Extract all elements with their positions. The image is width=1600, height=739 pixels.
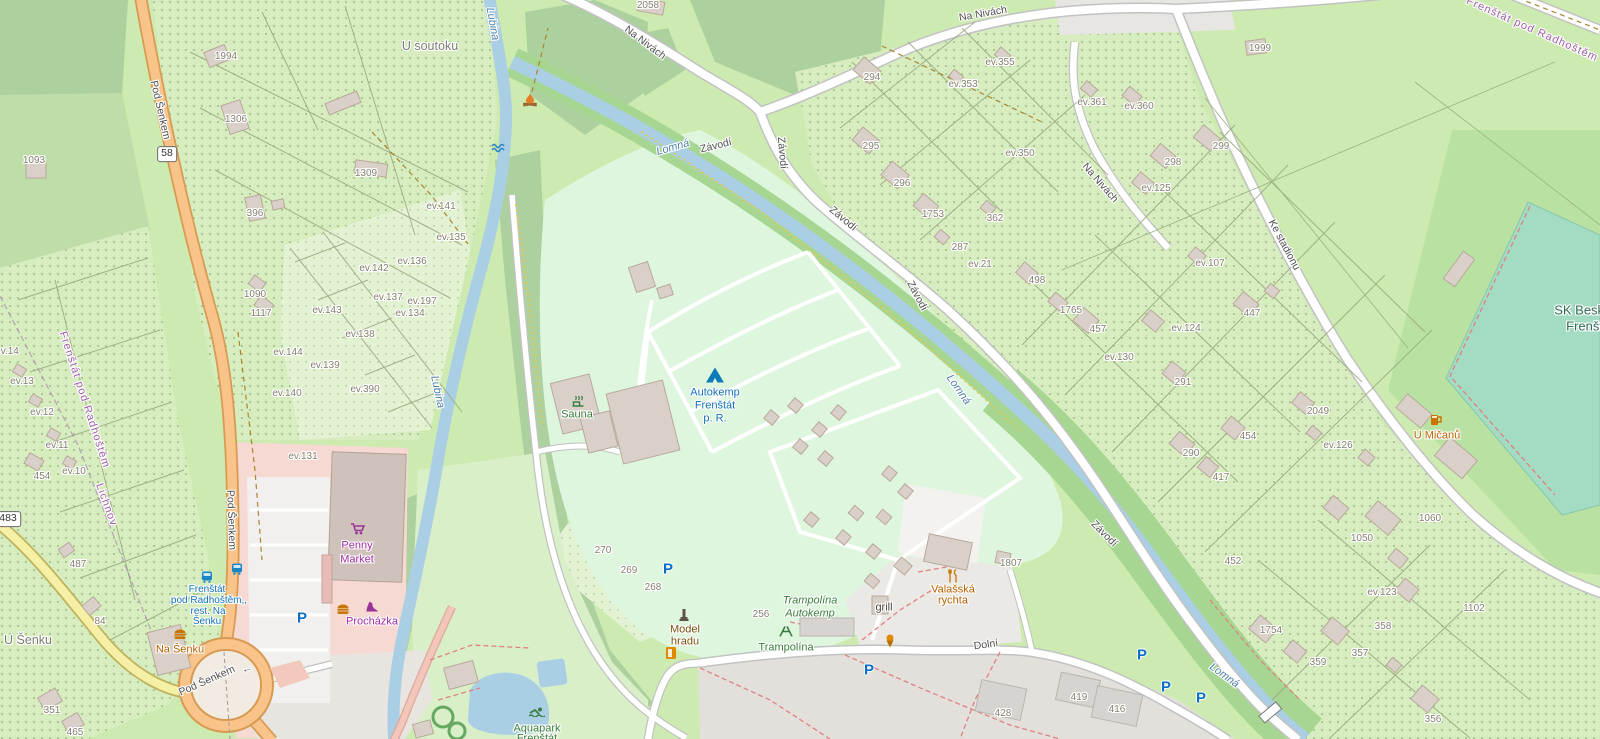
parcel-number: 287 bbox=[952, 243, 969, 253]
parcel-number: ev.124 bbox=[1171, 324, 1200, 334]
parcel-number: ev.125 bbox=[1141, 184, 1170, 194]
campsite-label: Frenštát bbox=[695, 401, 735, 412]
parcel-number: 1754 bbox=[1260, 626, 1282, 636]
parcel-number: ev.10 bbox=[62, 467, 86, 477]
road-label: Na Nivách bbox=[622, 24, 667, 62]
parcel-number: ev.355 bbox=[985, 58, 1014, 68]
sports-club-label: SK Beskyd bbox=[1554, 304, 1600, 317]
fastfood-icon bbox=[174, 629, 187, 639]
leisure-label: Trampolína bbox=[783, 596, 838, 607]
parcel-number: 269 bbox=[621, 566, 638, 576]
water-label: Lomná bbox=[944, 373, 972, 407]
boundary-label: Lichnov bbox=[93, 482, 119, 528]
parcel-number: 1994 bbox=[215, 52, 237, 62]
place-label: U soutoku bbox=[402, 40, 458, 53]
parcel-number: 270 bbox=[595, 546, 612, 556]
parcel-number: ev.360 bbox=[1124, 102, 1153, 112]
fastfood-icon bbox=[337, 604, 350, 614]
parking-icon: P bbox=[1161, 680, 1171, 695]
parcel-number: ev.11 bbox=[46, 441, 69, 451]
playground-icon bbox=[779, 626, 793, 637]
leisure-label: Trampolína bbox=[758, 643, 813, 654]
road-label: Závodí bbox=[699, 137, 733, 155]
monument-icon bbox=[680, 609, 689, 621]
road-label: Pod Šenkem bbox=[225, 490, 238, 550]
parcel-number: 1050 bbox=[1351, 534, 1373, 544]
water-label: Lubina bbox=[484, 7, 501, 41]
bus-stop-label: Frenštát bbox=[189, 585, 226, 595]
parcel-number: 1999 bbox=[1249, 44, 1271, 54]
parcel-number: 84 bbox=[94, 617, 105, 627]
parcel-number: 294 bbox=[864, 73, 881, 83]
parcel-number: 1765 bbox=[1060, 306, 1082, 316]
road-label: Na Nivách bbox=[1080, 161, 1120, 204]
road-label: Pod Šenkem bbox=[148, 80, 172, 141]
parcel-number: ev.134 bbox=[395, 309, 424, 319]
parcel-number: 419 bbox=[1071, 693, 1088, 703]
campfire-icon bbox=[523, 94, 537, 107]
parcel-number: 295 bbox=[863, 142, 880, 152]
parcel-number: 268 bbox=[645, 583, 662, 593]
parcel-number: ev.361 bbox=[1077, 98, 1106, 108]
campsite-label: Autokemp bbox=[690, 388, 740, 399]
parcel-number: ev.137 bbox=[373, 293, 402, 303]
parcel-number: 298 bbox=[1165, 158, 1182, 168]
parcel-number: 299 bbox=[1213, 142, 1230, 152]
parcel-number: 2049 bbox=[1307, 407, 1329, 417]
parcel-number: 362 bbox=[987, 214, 1004, 224]
leisure-label: Autokemp bbox=[785, 609, 835, 620]
parking-icon: P bbox=[1137, 648, 1147, 663]
parking-icon: P bbox=[297, 611, 307, 626]
parcel-number: 290 bbox=[1183, 449, 1200, 459]
vending-icon bbox=[666, 647, 676, 659]
poi-label: hradu bbox=[671, 637, 699, 648]
parcel-number: 1093 bbox=[23, 156, 45, 166]
parcel-number: 351 bbox=[44, 706, 61, 716]
sports-club-label: Frenštát bbox=[1566, 320, 1600, 333]
parcel-number: 417 bbox=[1213, 473, 1230, 483]
sauna-icon bbox=[572, 395, 585, 407]
road-label: Dolní bbox=[973, 638, 999, 652]
tent-icon bbox=[706, 368, 724, 383]
amenity-label: U Mičanů bbox=[1414, 431, 1460, 442]
road-label: Závodí bbox=[905, 279, 929, 312]
cart-icon bbox=[351, 523, 365, 535]
road-label: ← bbox=[241, 663, 254, 676]
parcel-number: 356 bbox=[1425, 715, 1442, 725]
parcel-number: ev.107 bbox=[1195, 259, 1224, 269]
parcel-number: ev.136 bbox=[397, 257, 426, 267]
map-canvas[interactable]: Pod ŠenkemPod ŠenkemPod Šenkem←Na Nivách… bbox=[0, 0, 1600, 739]
parcel-number: ev.350 bbox=[1005, 149, 1034, 159]
water-label: Lomná bbox=[655, 138, 690, 158]
poi-label: Model bbox=[670, 625, 700, 636]
parcel-number: 1753 bbox=[922, 210, 944, 220]
boundary-label: Frenštát pod Radhoštěm bbox=[1464, 0, 1599, 64]
parcel-number: 359 bbox=[1310, 658, 1327, 668]
parcel-number: ev.13 bbox=[10, 377, 34, 387]
parcel-number: ev.126 bbox=[1323, 441, 1352, 451]
parcel-number: 1117 bbox=[251, 309, 272, 319]
water-label: Lomná bbox=[1207, 662, 1241, 691]
parcel-number: ev.141 bbox=[426, 202, 455, 212]
parcel-number: ev.14 bbox=[0, 347, 19, 357]
parcel-number: ev.353 bbox=[948, 80, 977, 90]
parcel-number: 454 bbox=[1240, 432, 1257, 442]
parcel-number: ev.21 bbox=[968, 260, 992, 270]
parcel-number: 454 bbox=[34, 472, 51, 482]
road-shield: 483 bbox=[0, 511, 21, 527]
map-labels: Pod ŠenkemPod ŠenkemPod Šenkem←Na Nivách… bbox=[0, 0, 1600, 739]
parcel-number: 465 bbox=[67, 728, 84, 738]
parcel-number: ev.139 bbox=[310, 361, 339, 371]
parcel-number: ev.197 bbox=[407, 297, 436, 307]
parcel-number: 1306 bbox=[225, 115, 247, 125]
road-shield: 58 bbox=[157, 146, 177, 162]
parking-icon: P bbox=[663, 562, 673, 577]
place-label: U Šenku bbox=[4, 634, 52, 647]
parcel-number: 1309 bbox=[355, 169, 377, 179]
parking-icon: P bbox=[1196, 691, 1206, 706]
campsite-label: p. R. bbox=[703, 414, 726, 425]
parcel-number: 416 bbox=[1109, 705, 1126, 715]
amenity-label: rychta bbox=[938, 596, 968, 607]
parcel-number: ev.12 bbox=[30, 408, 54, 418]
water-label: Lubina bbox=[428, 375, 446, 410]
bus-stop-label: pod Radhoštěm,, bbox=[171, 596, 247, 606]
parcel-number: ev.138 bbox=[345, 330, 374, 340]
road-label: Závodí bbox=[1089, 519, 1119, 549]
shoe-icon bbox=[365, 602, 378, 613]
shop-label: Procházka bbox=[346, 617, 398, 628]
parcel-number: ev.135 bbox=[436, 233, 465, 243]
parcel-number: ev.142 bbox=[359, 264, 388, 274]
parcel-number: 296 bbox=[894, 179, 911, 189]
amenity-label: Na Šenku bbox=[156, 645, 204, 656]
bus-icon bbox=[202, 571, 213, 583]
parcel-number: 452 bbox=[1225, 557, 1242, 567]
parcel-number: 428 bbox=[995, 709, 1012, 719]
road-label: Závodí bbox=[775, 137, 788, 170]
parcel-number: 291 bbox=[1175, 378, 1192, 388]
parcel-number: 1090 bbox=[244, 290, 266, 300]
restaurant-icon bbox=[947, 570, 959, 583]
parcel-number: 1102 bbox=[1463, 604, 1485, 614]
leisure-label: Frenštát bbox=[517, 734, 557, 739]
road-label: Ke stadionu bbox=[1266, 218, 1301, 272]
waves-icon bbox=[491, 143, 505, 153]
parcel-number: 498 bbox=[1029, 276, 1046, 286]
parcel-number: ev.131 bbox=[288, 452, 317, 462]
parcel-number: 447 bbox=[1244, 309, 1261, 319]
parcel-number: 1807 bbox=[1000, 559, 1022, 569]
parcel-number: 256 bbox=[753, 610, 770, 620]
leisure-label: Sauna bbox=[561, 410, 593, 421]
parcel-number: 2058 bbox=[637, 1, 659, 11]
icecream-icon bbox=[885, 635, 895, 648]
poi-label: grill bbox=[875, 603, 892, 614]
parcel-number: ev.144 bbox=[273, 348, 302, 358]
parcel-number: 487 bbox=[70, 560, 87, 570]
parcel-number: ev.143 bbox=[312, 306, 341, 316]
parking-icon: P bbox=[864, 663, 874, 678]
parcel-number: 396 bbox=[247, 209, 264, 219]
bus-stop-label: Šenku bbox=[193, 617, 221, 627]
swimmer-icon bbox=[529, 707, 545, 717]
parcel-number: 358 bbox=[1375, 622, 1392, 632]
parcel-number: ev.140 bbox=[272, 389, 301, 399]
parcel-number: 357 bbox=[1352, 649, 1369, 659]
road-label: Na Nivách bbox=[958, 5, 1008, 24]
road-label: Pod Šenkem bbox=[177, 664, 236, 698]
parcel-number: 1060 bbox=[1419, 514, 1441, 524]
road-label: Závodí bbox=[827, 205, 858, 234]
shop-label: Market bbox=[340, 555, 374, 566]
parcel-number: ev.123 bbox=[1367, 588, 1396, 598]
bus-icon bbox=[232, 563, 243, 575]
parcel-number: ev.390 bbox=[350, 385, 379, 395]
beer-icon bbox=[1430, 414, 1442, 426]
parcel-number: ev.130 bbox=[1104, 353, 1133, 363]
shop-label: Penny bbox=[341, 541, 372, 552]
parcel-number: 457 bbox=[1090, 325, 1107, 335]
